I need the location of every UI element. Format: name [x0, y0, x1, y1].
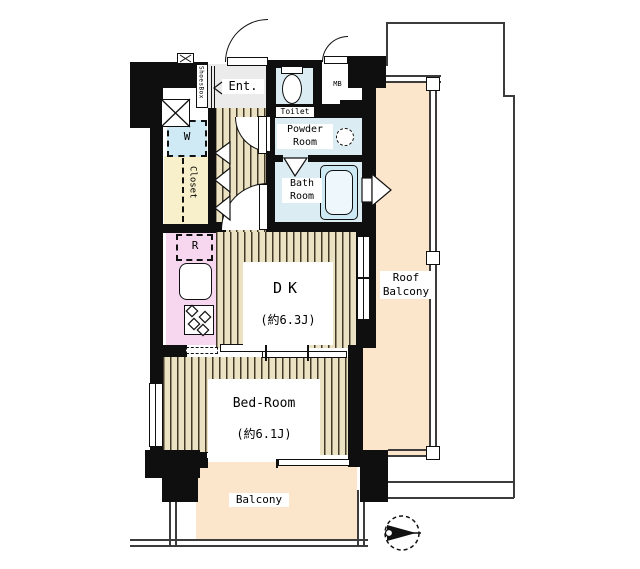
- entrance-step-line: [214, 66, 215, 110]
- dk-name: DK: [243, 279, 333, 298]
- wall: [308, 155, 363, 162]
- balcony-railing: [357, 490, 359, 546]
- dk-door-leaf: [259, 184, 268, 230]
- room-label-mb: MB: [330, 80, 345, 89]
- corridor-door-leaf: [258, 116, 267, 154]
- room-label-closet: Closet: [186, 166, 197, 199]
- wall: [348, 345, 363, 467]
- bedroom-window: [149, 383, 163, 447]
- wall: [272, 155, 283, 162]
- toilet-tank: [281, 66, 303, 74]
- outline-line: [388, 481, 514, 483]
- railing-post: [426, 77, 440, 91]
- outline-line: [503, 22, 505, 96]
- entrance-door-leaf: [227, 57, 268, 66]
- balcony-railing: [130, 539, 368, 541]
- bathtub-inner: [325, 170, 353, 215]
- bedroom-name: Bed-Room: [208, 396, 320, 412]
- mb-door-leaf: [324, 56, 348, 64]
- room-label-bath: Bath Room: [282, 178, 322, 203]
- roof-balcony-railing: [429, 78, 431, 458]
- kitchen-sink: [179, 263, 212, 300]
- balcony-window-panel: [278, 459, 350, 466]
- entrance-step-line: [211, 66, 212, 110]
- wall: [162, 450, 198, 502]
- outline-line: [388, 497, 514, 499]
- room-label-dk: DK (約6.3J): [243, 262, 333, 345]
- entrance-door-arc: [225, 19, 268, 62]
- room-label-bedroom: Bed-Room (約6.1J): [208, 379, 320, 459]
- dk-window-tick: [357, 277, 370, 279]
- outline-line: [386, 22, 388, 66]
- sliding-door-track: [186, 347, 218, 354]
- wall-vent-box: [177, 53, 194, 64]
- outline-line: [386, 22, 504, 24]
- closet-divider: [182, 158, 184, 222]
- floor-plan: Ent. ShoesBox Toilet MB Powder Room Bath…: [0, 0, 640, 569]
- dk-size: (約6.3J): [243, 313, 333, 328]
- wall: [348, 56, 386, 88]
- balcony-railing: [175, 497, 177, 546]
- sliding-door-panel: [262, 351, 347, 358]
- room-label-roof-balcony: Roof Balcony: [380, 271, 432, 299]
- room-label-ent: Ent.: [222, 79, 264, 94]
- roof-balcony-railing: [435, 78, 437, 458]
- railing-post: [426, 251, 440, 265]
- balcony-railing: [169, 497, 171, 546]
- north-arrow-compass-icon: [385, 516, 421, 550]
- wall: [163, 345, 187, 357]
- room-label-toilet: Toilet: [276, 107, 314, 117]
- outline-line: [513, 95, 515, 498]
- balcony-railing: [130, 545, 368, 547]
- toilet-bowl: [282, 74, 302, 104]
- room-label-shoesbox: ShoesBox: [197, 66, 205, 99]
- wall: [360, 452, 388, 502]
- label-fridge: R: [188, 239, 202, 253]
- room-label-powder: Powder Room: [277, 124, 333, 149]
- railing-post: [426, 446, 440, 460]
- bedroom-size: (約6.1J): [208, 427, 320, 442]
- stove: [184, 305, 214, 335]
- label-washer: W: [180, 130, 194, 144]
- wall: [266, 60, 276, 110]
- wall: [163, 224, 216, 233]
- room-label-balcony: Balcony: [229, 493, 289, 507]
- pipe-shaft: [161, 99, 190, 127]
- powder-sink: [336, 128, 354, 146]
- bedroom-window-line: [155, 384, 156, 446]
- wall: [208, 108, 216, 232]
